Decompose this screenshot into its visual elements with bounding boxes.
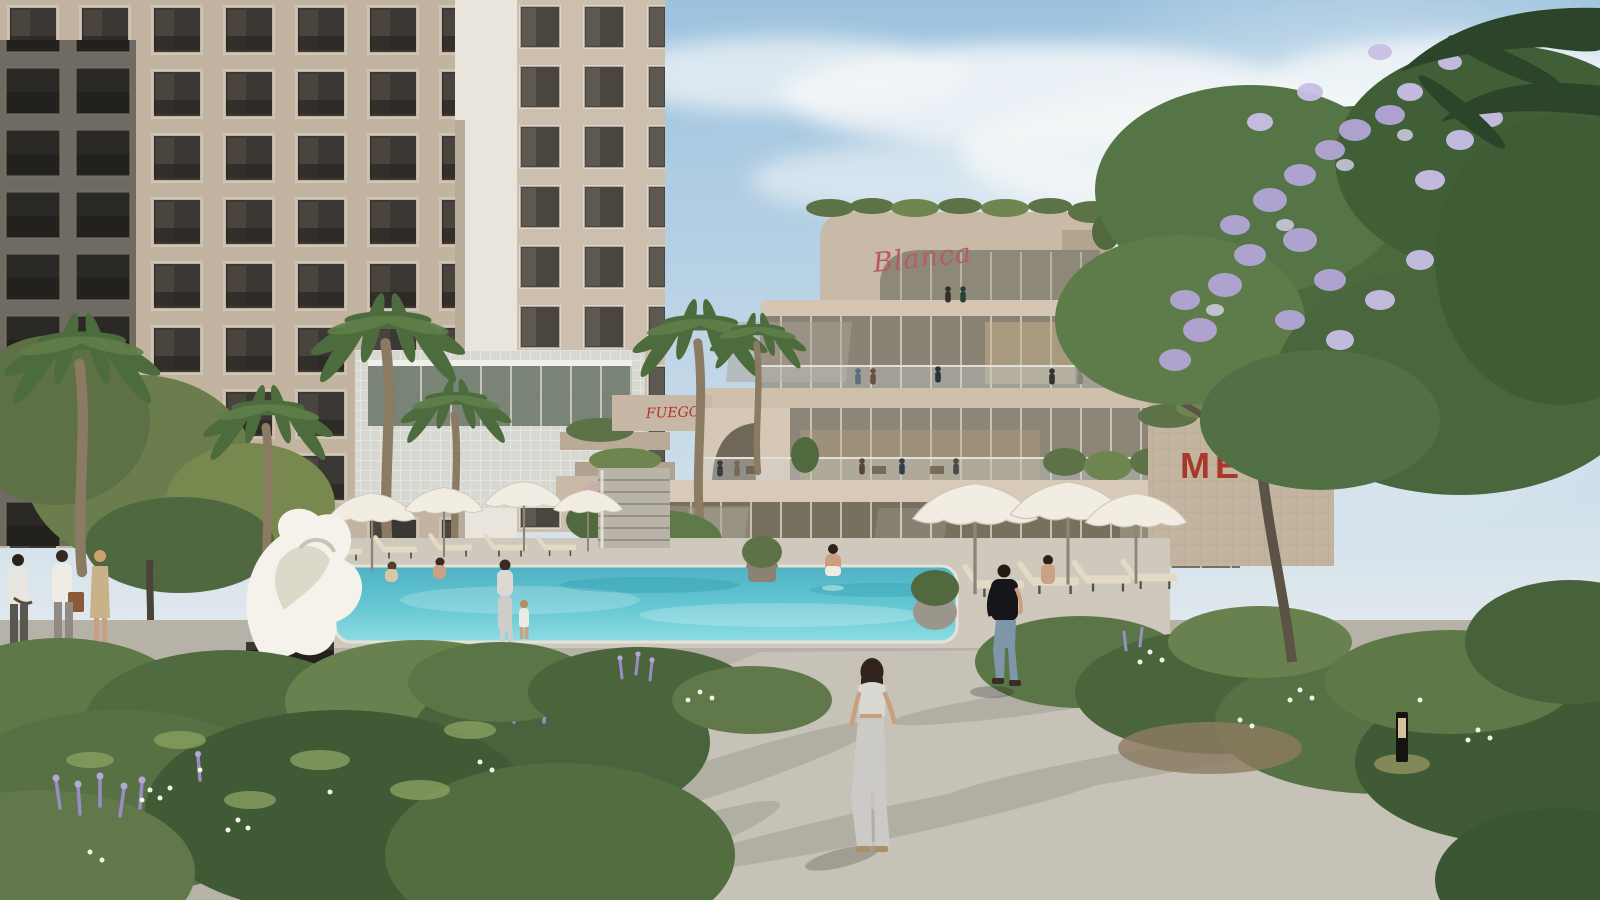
fuego-sign: FUEGO — [645, 404, 701, 422]
rendered-photo: Blanca Pool Cafe FUEGO — [0, 0, 1600, 900]
scene-canvas: Blanca Pool Cafe FUEGO — [0, 0, 1600, 900]
swimming-pool — [335, 566, 957, 642]
